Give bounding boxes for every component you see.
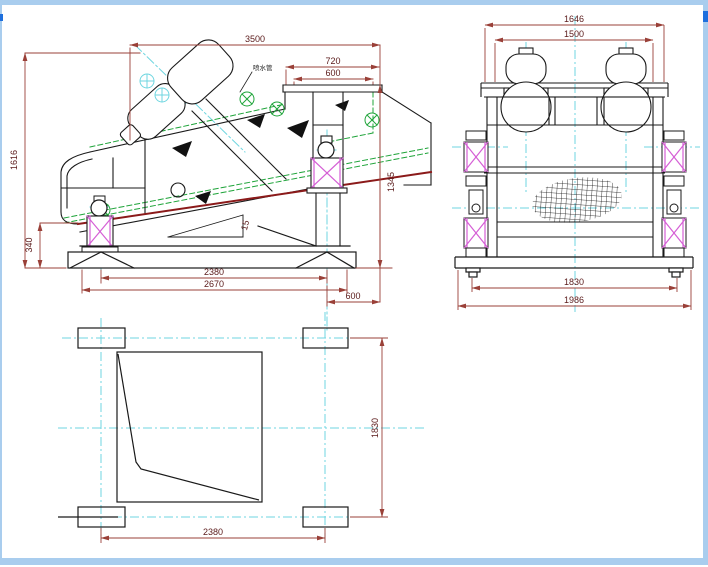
plan-view: 1830 2380 (58, 312, 425, 543)
cad-canvas: 15 喷水管 (0, 0, 708, 567)
front-view: 1646 1500 1830 1986 (452, 14, 700, 312)
deck-bolt-circle (171, 183, 185, 197)
front-right-leg (662, 131, 686, 257)
side-view: 15 喷水管 (9, 34, 431, 330)
front-base (455, 257, 693, 277)
vibration-motors-front (501, 48, 651, 132)
border-accent-right (703, 11, 708, 22)
dim-top-width: 720 (325, 56, 340, 66)
dim-motor-span: 1500 (564, 29, 584, 39)
dim-overhang: 600 (345, 291, 360, 301)
dim-leg-span: 1830 (564, 277, 584, 287)
dim-top-inner: 600 (325, 68, 340, 78)
spray-pipes (64, 92, 428, 223)
dim-height: 1616 (9, 150, 19, 170)
dim-plan-width: 1830 (370, 418, 380, 438)
dim-base-span: 2380 (204, 267, 224, 277)
screen-mesh (529, 172, 624, 228)
border-accent-left (0, 14, 3, 21)
plan-dimensions (101, 338, 388, 543)
dim-length: 3500 (245, 34, 265, 44)
dim-feed-height: 340 (24, 237, 34, 252)
spray-pipe-label: 喷水管 (253, 63, 273, 72)
right-support (258, 92, 347, 246)
screen-deck-line (78, 172, 431, 224)
front-left-leg (464, 131, 488, 257)
technical-drawing: 15 喷水管 (0, 0, 708, 567)
angle-label: 15 (239, 219, 251, 231)
left-support (82, 196, 118, 252)
dim-base-length: 2670 (204, 279, 224, 289)
dim-plan-length: 2380 (203, 527, 223, 537)
dim-right-height: 1345 (386, 172, 396, 192)
spray-leader (240, 72, 252, 92)
dim-overall-width: 1646 (564, 14, 584, 24)
dim-base-width: 1986 (564, 295, 584, 305)
angle-indicator (168, 215, 243, 237)
deck-plan (117, 352, 262, 502)
